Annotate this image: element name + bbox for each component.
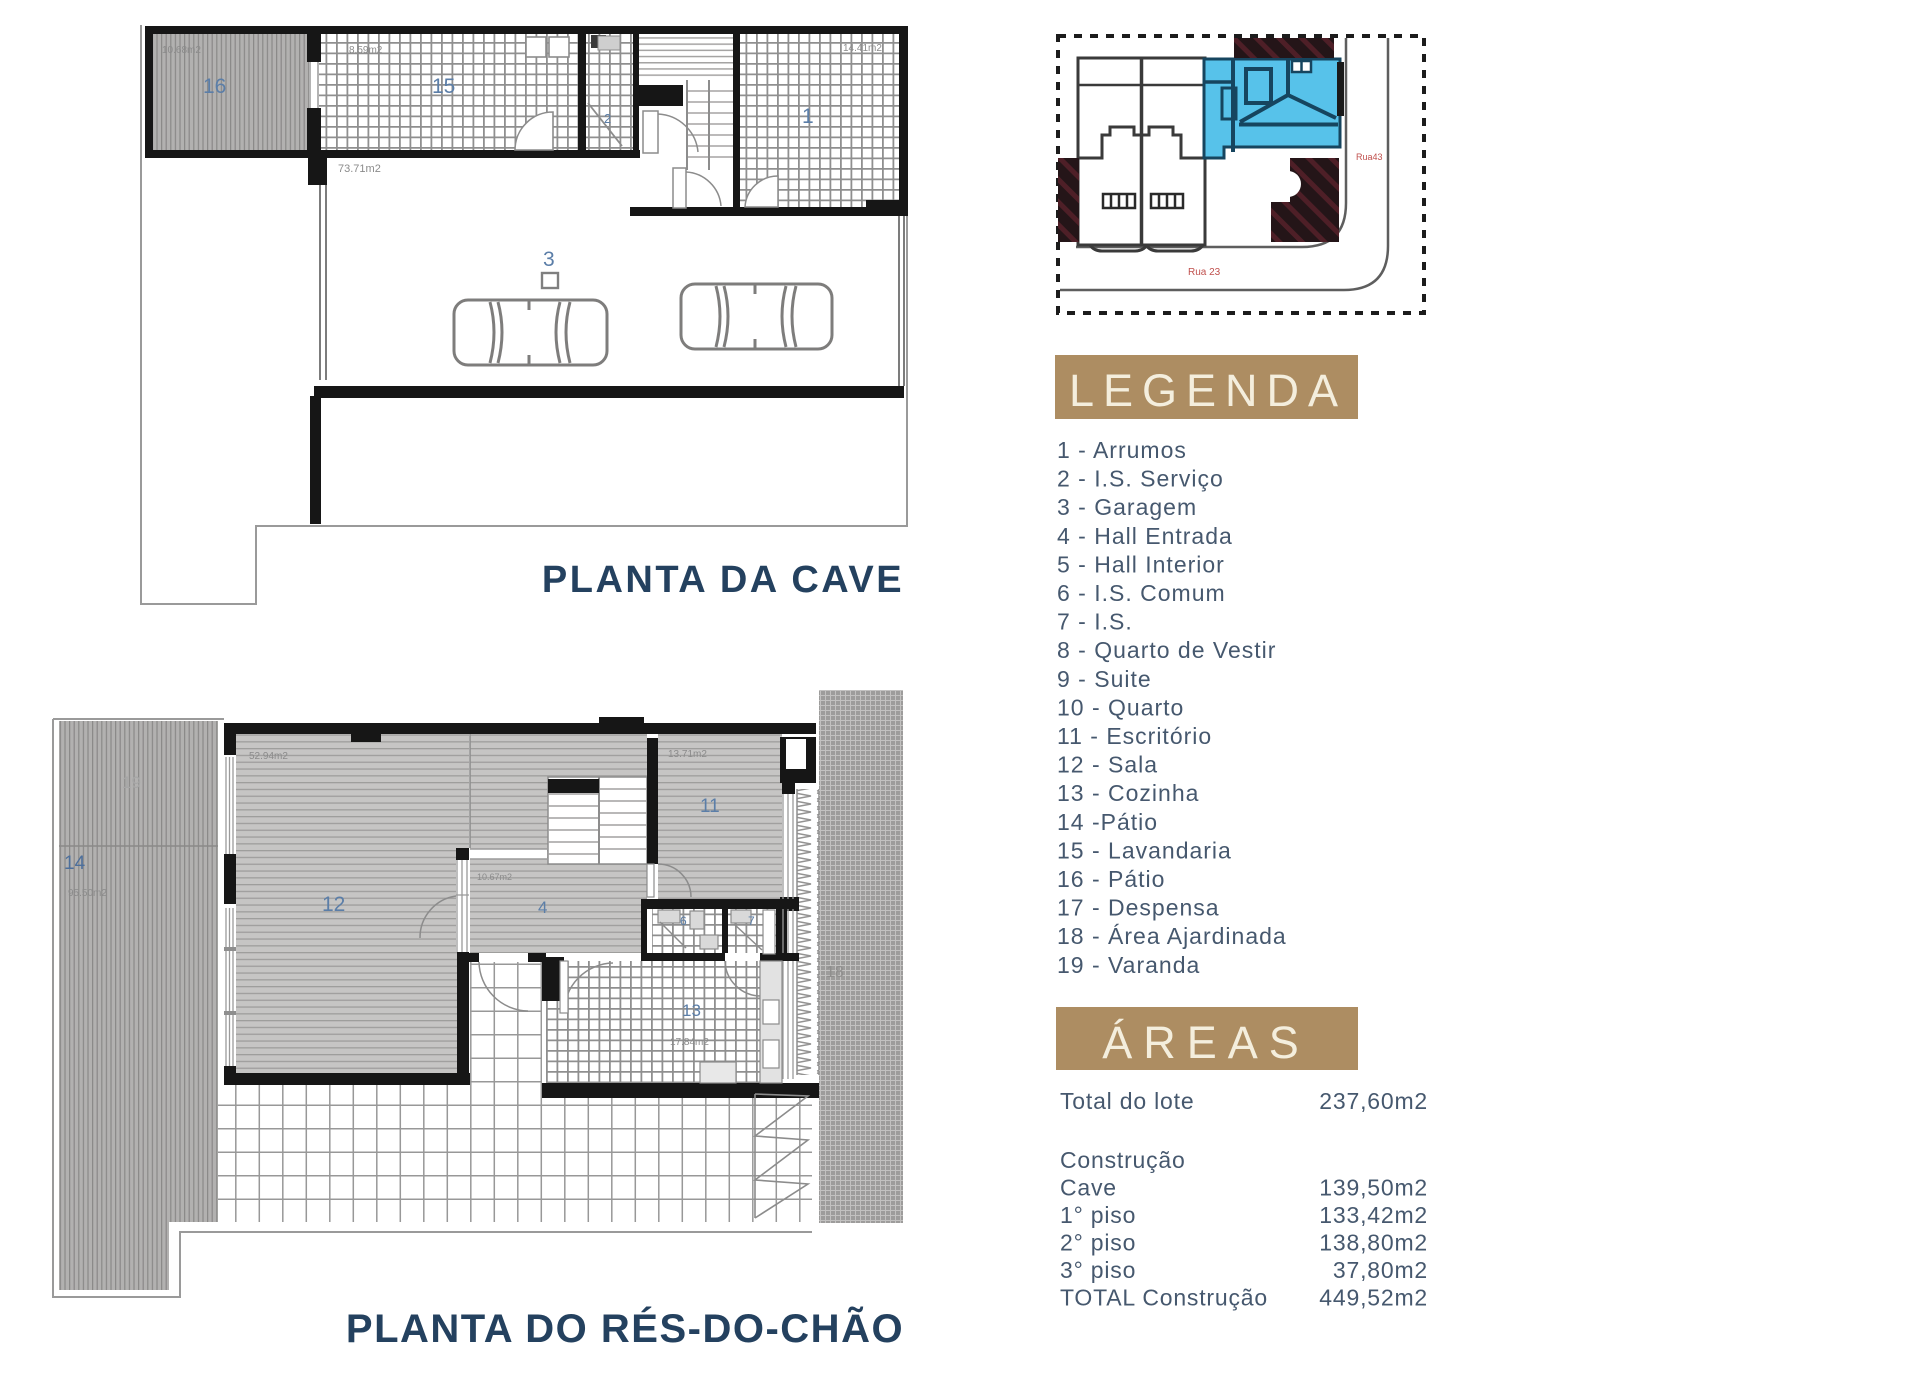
svg-text:4: 4 [538,898,547,917]
svg-text:37,80m2: 37,80m2 [1333,1257,1428,1283]
svg-text:13: 13 [682,1001,701,1020]
svg-text:3 - Garagem: 3 - Garagem [1057,494,1197,520]
svg-text:8.59m2: 8.59m2 [349,45,383,56]
svg-text:13 - Cozinha: 13 - Cozinha [1057,780,1199,806]
svg-text:2° piso: 2° piso [1060,1230,1136,1256]
svg-text:133,42m2: 133,42m2 [1319,1202,1428,1228]
svg-text:237,60m2: 237,60m2 [1319,1088,1428,1114]
svg-text:19: 19 [122,773,141,792]
svg-text:7 - I.S.: 7 - I.S. [1057,609,1133,635]
svg-text:3: 3 [543,248,555,271]
svg-text:12 - Sala: 12 - Sala [1057,752,1158,778]
svg-text:17.84m2: 17.84m2 [670,1037,709,1048]
svg-text:10.68m2: 10.68m2 [162,45,201,56]
svg-text:TOTAL Construção: TOTAL Construção [1060,1285,1268,1311]
svg-text:PLANTA DO RÉS-DO-CHÃO: PLANTA DO RÉS-DO-CHÃO [346,1305,904,1351]
svg-text:5 - Hall Interior: 5 - Hall Interior [1057,551,1225,577]
svg-text:18 - Área Ajardinada: 18 - Área Ajardinada [1057,923,1287,949]
svg-text:Construção: Construção [1060,1147,1186,1173]
svg-text:1 - Arrumos: 1 - Arrumos [1057,437,1187,463]
svg-text:8 - Quarto de Vestir: 8 - Quarto de Vestir [1057,637,1276,663]
svg-text:1: 1 [802,105,814,128]
svg-text:PLANTA DA CAVE: PLANTA DA CAVE [542,559,904,601]
svg-text:449,52m2: 449,52m2 [1319,1285,1428,1311]
svg-text:1° piso: 1° piso [1060,1202,1136,1228]
svg-text:4 - Hall Entrada: 4 - Hall Entrada [1057,523,1233,549]
svg-text:6: 6 [680,914,687,928]
svg-text:6 - I.S. Comum: 6 - I.S. Comum [1057,580,1226,606]
svg-text:LEGENDA: LEGENDA [1069,365,1347,416]
svg-text:9 - Suite: 9 - Suite [1057,666,1152,692]
svg-text:138,80m2: 138,80m2 [1319,1230,1428,1256]
svg-text:73.71m2: 73.71m2 [338,163,381,175]
svg-text:ÁREAS: ÁREAS [1102,1017,1310,1068]
svg-text:Rua43: Rua43 [1356,152,1383,162]
svg-text:10 - Quarto: 10 - Quarto [1057,694,1184,720]
svg-text:11 - Escritório: 11 - Escritório [1057,723,1212,749]
svg-text:10.67m2: 10.67m2 [477,872,512,882]
svg-text:95.50m2: 95.50m2 [68,888,107,899]
svg-text:2 - I.S. Serviço: 2 - I.S. Serviço [1057,466,1224,492]
svg-text:18: 18 [826,964,844,981]
svg-text:13.71m2: 13.71m2 [668,749,707,760]
svg-text:139,50m2: 139,50m2 [1319,1175,1428,1201]
svg-text:17 - Despensa: 17 - Despensa [1057,895,1220,921]
svg-text:15 - Lavandaria: 15 - Lavandaria [1057,837,1232,863]
svg-text:19 - Varanda: 19 - Varanda [1057,952,1200,978]
svg-text:16 - Pátio: 16 - Pátio [1057,866,1165,892]
svg-text:7: 7 [748,914,755,928]
svg-text:Total do lote: Total do lote [1060,1088,1194,1114]
svg-text:Cave: Cave [1060,1175,1117,1201]
svg-text:3° piso: 3° piso [1060,1257,1136,1283]
svg-text:11: 11 [700,796,720,817]
svg-text:14 -Pátio: 14 -Pátio [1057,809,1158,835]
svg-text:52.94m2: 52.94m2 [249,751,288,762]
svg-text:Rua 23: Rua 23 [1188,267,1221,278]
svg-text:14.41m2: 14.41m2 [843,43,882,54]
svg-text:15: 15 [432,75,455,98]
svg-text:2: 2 [604,111,611,126]
svg-text:14: 14 [64,853,86,874]
svg-text:16: 16 [203,75,226,98]
svg-text:12: 12 [322,893,345,916]
